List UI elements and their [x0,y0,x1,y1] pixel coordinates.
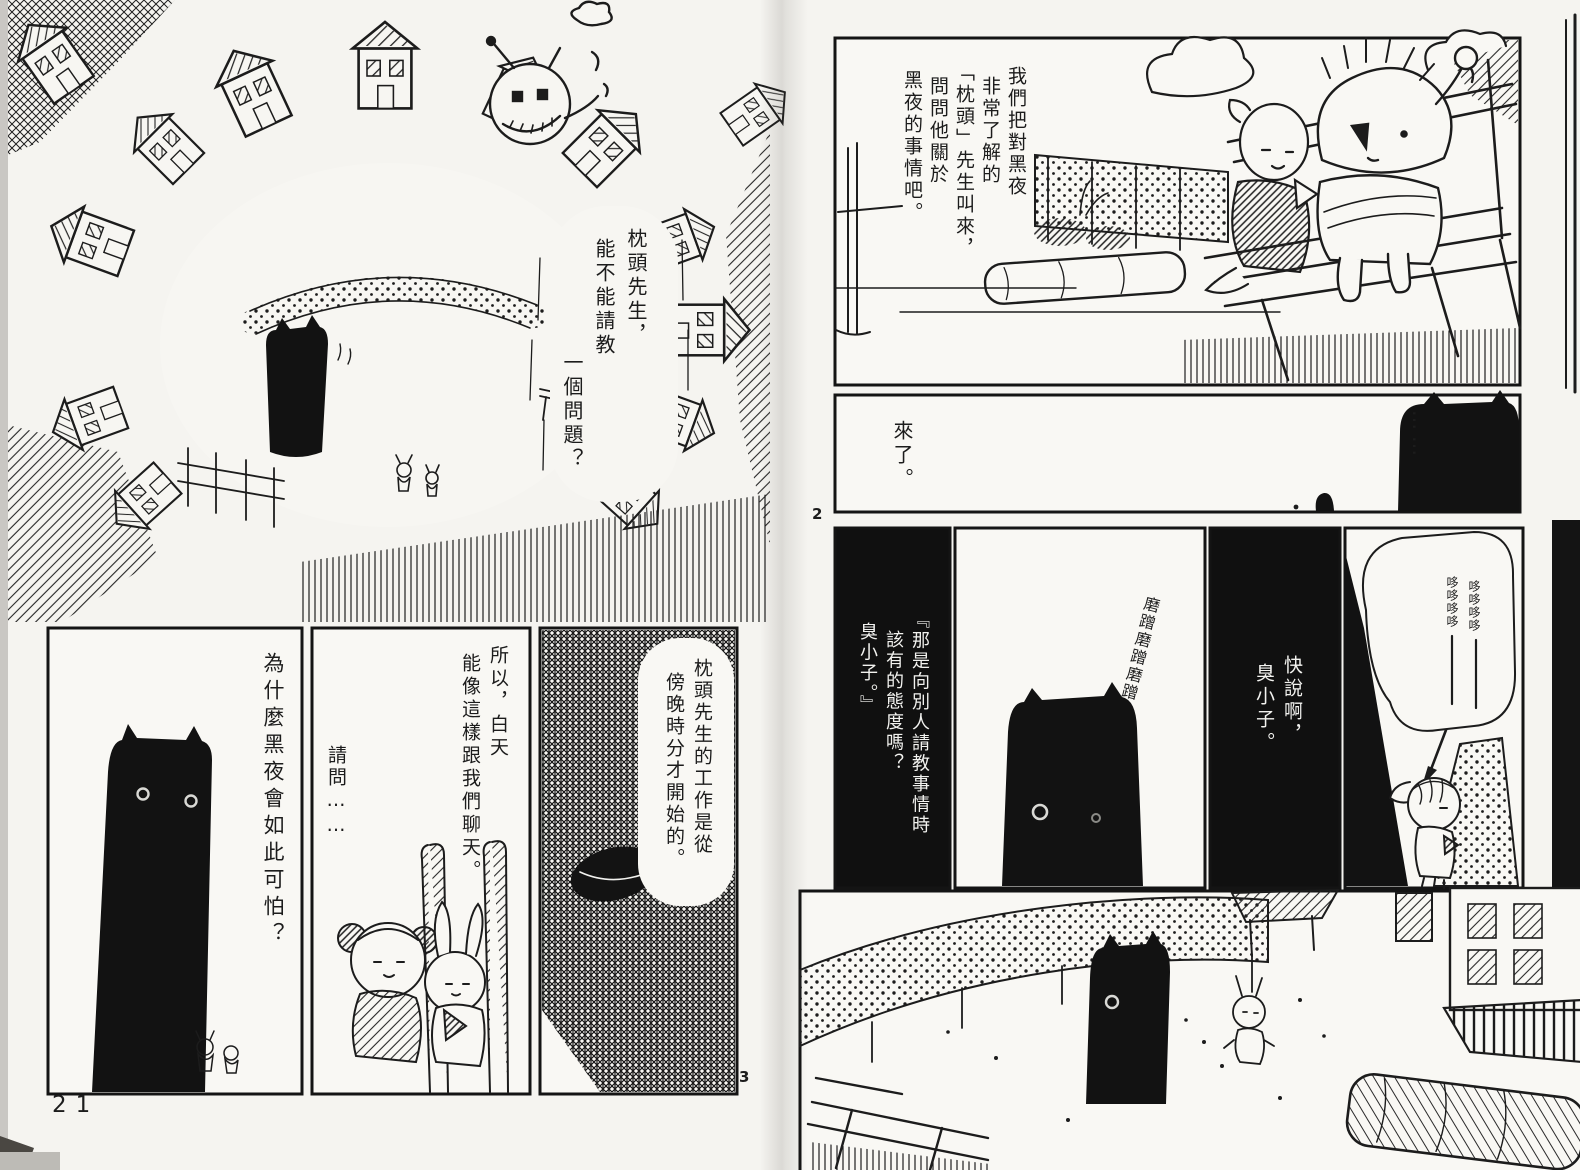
bubble-pillow-question-col1: 枕頭先生， [626,228,646,348]
dialogue-hurry-col1: 快說啊， [1282,655,1301,747]
dialogue-came: 來了。 [892,420,912,492]
sfx-shiver-col2: 哆哆哆哆 [1468,580,1480,632]
dialogue-scold-col1: 『那是向別人請教事情時 [910,610,928,836]
panel-marker-2: 2 [812,505,822,523]
pillow-creature-dark-panel [92,724,238,1092]
stuffed-kids-panel [338,841,508,1092]
bubble-pillow-question-col2: 能不能請教 [594,238,614,358]
pillow-creature-rubbing [1002,682,1143,886]
pillow-creature-wide-panel [1294,390,1519,512]
narration-top-col5: 黑夜的事情吧。 [902,70,921,224]
sfx-shiver-col1: 哆哆哆哆 [1446,576,1458,628]
bubble-pillow-question-col3: 一個問題？ [562,352,582,472]
shiver-balloon-panel [1345,532,1518,888]
dialogue-pillow-work-col1: 枕頭先生的工作是從 [692,658,711,856]
narration-top-col1: 我們把對黑夜 [1006,66,1025,198]
narration-top-col3: 「枕頭」先生叫來， [954,62,973,260]
dialogue-pillow-work-col2: 傍晚時分才開始的。 [664,672,683,870]
ellipsis-dots: …… [1410,410,1430,462]
page-number: 21 [52,1092,99,1118]
page-gutter [760,0,808,1170]
dialogue-scold-col3: 臭小子。』 [858,622,876,716]
dialogue-excuse-me: 請問…… [326,745,345,839]
plaza-scene [800,888,1580,1170]
dialogue-why-night-scary: 為什麼黑夜會如此可怕？ [262,652,283,949]
dialogue-so-daytime-col1: 所以，白天 [488,645,507,760]
dialogue-hurry-col2: 臭小子。 [1254,663,1273,755]
flying-robot [487,2,612,144]
dialogue-scold-col2: 該有的態度嗎？ [884,630,902,774]
manga-spread: 枕頭先生， 能不能請教 一個問題？ 為什麼黑夜會如此可怕？ 所以，白天 能像這樣… [0,0,1580,1170]
narration-top-col4: 問問他關於 [928,76,947,186]
dialogue-so-daytime-col2: 能像這樣跟我們聊天。 [460,653,479,883]
left-page-art [4,0,799,1094]
panel-marker-3: 3 [739,1068,749,1086]
scan-bottom-edge [0,1152,60,1170]
scan-corner-smudge [0,1136,34,1170]
scan-left-edge [0,0,8,1170]
sfx-rubbing: 磨蹭磨蹭磨蹭 [1118,594,1160,703]
narration-top-col2: 非常了解的 [980,76,999,186]
